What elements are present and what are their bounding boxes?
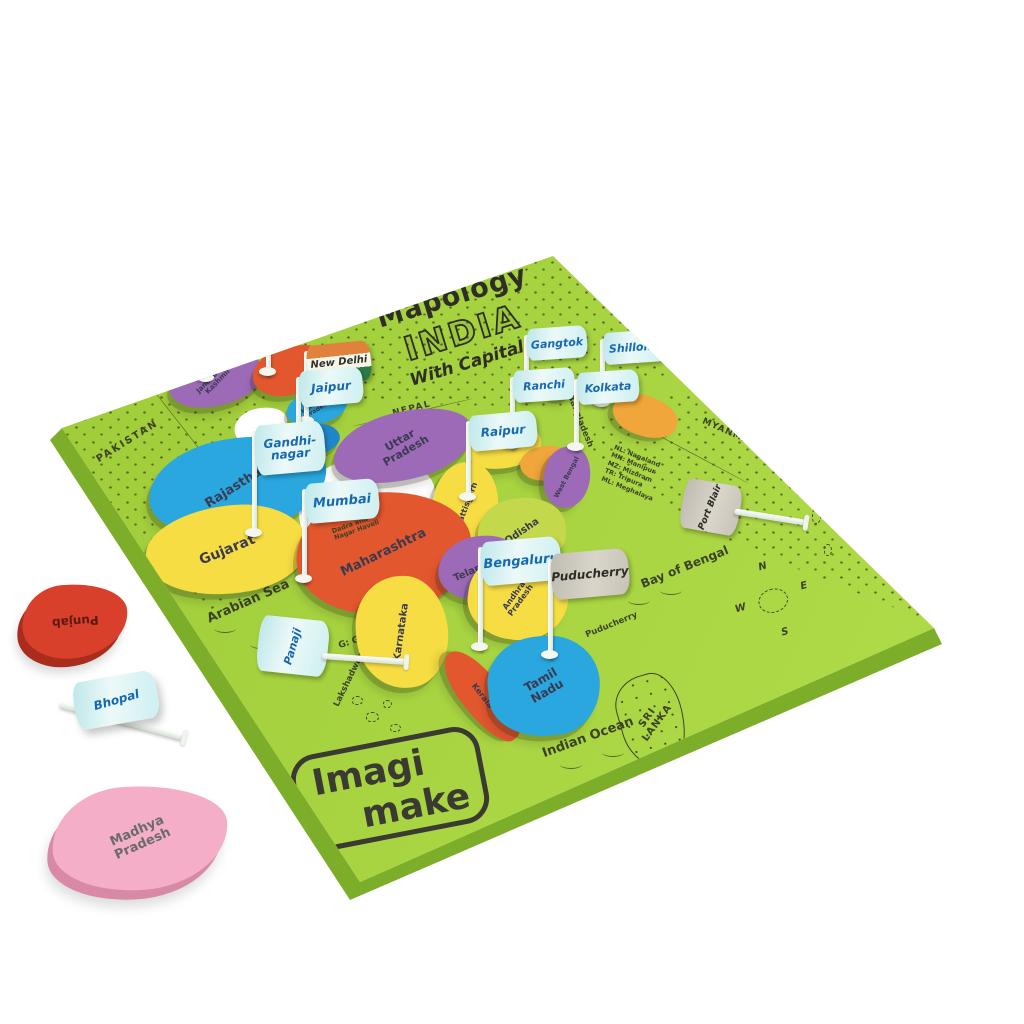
flag-banner: Srinagar <box>206 292 274 331</box>
flag-label: Shillong <box>609 340 660 354</box>
flag-banner: Gandhi- nagar <box>253 420 327 476</box>
loose-piece-label: Punjab <box>51 613 98 629</box>
flag-banner: Panaji <box>255 614 330 677</box>
label-puducherry-board: Puducherry <box>584 610 639 640</box>
flag-banner: Kolkata <box>576 369 640 405</box>
flag-banner: Leh <box>268 288 328 323</box>
loose-piece-madhya-pradesh[interactable]: Madhya Pradesh <box>49 780 232 896</box>
compass-south: S <box>780 626 790 639</box>
label-afghanistan: AFGHANISTAN <box>46 368 121 414</box>
state-label: Jammu and Kashmir <box>189 352 243 407</box>
flag-label: Panaji <box>283 626 304 665</box>
flag-base <box>245 528 262 537</box>
flag-base <box>459 492 476 501</box>
state-label: West Bengal <box>553 455 581 499</box>
flag-banner: Gangtok <box>526 325 588 361</box>
loose-piece-punjab[interactable]: Punjab <box>18 579 131 664</box>
flag-label: Gandhi- nagar <box>263 434 317 462</box>
flag-base <box>197 373 214 382</box>
flag-base <box>541 650 558 659</box>
product-photo-mapology-india: Mapology INDIA With Capitals AFGHANISTAN… <box>0 0 1024 1024</box>
flag-label: Bhopal <box>92 688 140 712</box>
flag-label: Port Blair <box>697 482 724 532</box>
flag-base <box>471 642 488 651</box>
loose-piece-label: Madhya Pradesh <box>93 807 186 869</box>
compass-west: W <box>734 602 748 616</box>
state-label: Karnataka <box>393 602 412 661</box>
flag-banner: Jaipur <box>298 366 365 407</box>
flag-banner: Raipur <box>468 410 539 452</box>
flag-label: Ranchi <box>523 378 566 392</box>
flag-base <box>567 442 584 451</box>
flag-pole <box>204 302 209 382</box>
flag-banner: Puducherry <box>549 548 631 601</box>
flag-label: Puducherry <box>551 565 629 584</box>
flag-banner: Bhopal <box>70 669 161 731</box>
label-sri-lanka: SRI LANKA <box>631 698 672 743</box>
flag-label: Gangtok <box>531 336 584 351</box>
compass-east: E <box>799 580 809 592</box>
flag-banner: Port Blair <box>678 477 744 536</box>
flag-label: Leh <box>287 299 310 311</box>
flag-label: Raipur <box>480 423 525 439</box>
flag-base <box>259 367 276 376</box>
flag-label: Jaipur <box>311 379 352 394</box>
flag-base <box>295 574 312 583</box>
compass-ring <box>756 585 791 616</box>
state-label: Uttar Pradesh <box>367 419 439 474</box>
flag-pole <box>266 297 271 376</box>
flag-banner: Shillong <box>602 329 666 365</box>
state-label: Tamil Nadu <box>513 661 574 711</box>
flag-label: Kolkata <box>584 380 631 394</box>
compass-north: N <box>757 560 768 573</box>
state-label: Gujarat <box>197 532 257 568</box>
flag-banner: Mumbai <box>303 478 380 524</box>
flag-label: Mumbai <box>312 492 371 510</box>
label-bay-of-bengal: Bay of Bengal <box>639 543 731 591</box>
flag-label: Srinagar <box>213 304 267 319</box>
flag-banner: Ranchi <box>512 367 576 403</box>
